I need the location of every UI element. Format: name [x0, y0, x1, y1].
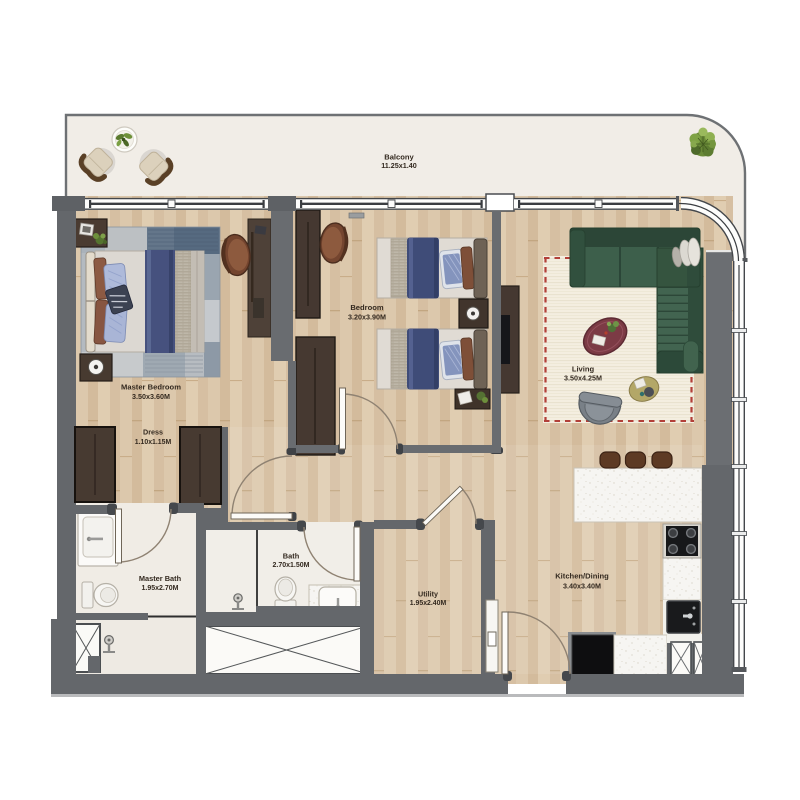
svg-text:Master Bedroom: Master Bedroom — [121, 383, 181, 392]
svg-text:Kitchen/Dining: Kitchen/Dining — [555, 572, 609, 581]
svg-text:3.20x3.90M: 3.20x3.90M — [348, 313, 386, 322]
svg-text:Bedroom: Bedroom — [350, 303, 384, 312]
svg-text:3.50x3.60M: 3.50x3.60M — [132, 392, 170, 401]
svg-text:Master Bath: Master Bath — [139, 574, 182, 583]
svg-text:11.25x1.40: 11.25x1.40 — [381, 161, 417, 170]
svg-text:1.95x2.70M: 1.95x2.70M — [142, 585, 179, 592]
svg-text:3.50x4.25M: 3.50x4.25M — [564, 374, 602, 383]
svg-text:Dress: Dress — [143, 428, 163, 437]
svg-text:Living: Living — [572, 365, 595, 374]
svg-text:3.40x3.40M: 3.40x3.40M — [563, 582, 601, 591]
svg-text:Bath: Bath — [283, 552, 300, 561]
svg-text:2.70x1.50M: 2.70x1.50M — [273, 562, 310, 569]
svg-text:1.10x1.15M: 1.10x1.15M — [135, 439, 172, 446]
svg-text:1.95x2.40M: 1.95x2.40M — [410, 600, 447, 607]
svg-text:Utility: Utility — [418, 590, 438, 599]
